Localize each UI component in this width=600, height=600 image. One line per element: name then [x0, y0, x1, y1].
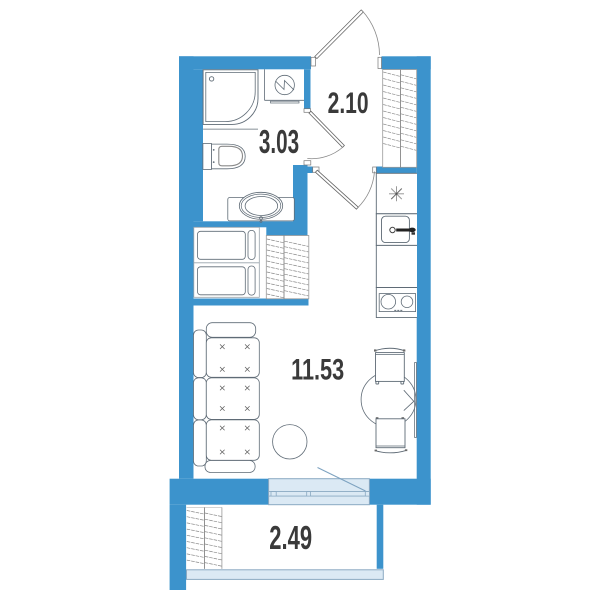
svg-text:3.03: 3.03 — [259, 123, 299, 160]
svg-text:2.49: 2.49 — [269, 520, 312, 556]
svg-text:2.10: 2.10 — [328, 88, 369, 120]
svg-text:11.53: 11.53 — [291, 352, 344, 386]
